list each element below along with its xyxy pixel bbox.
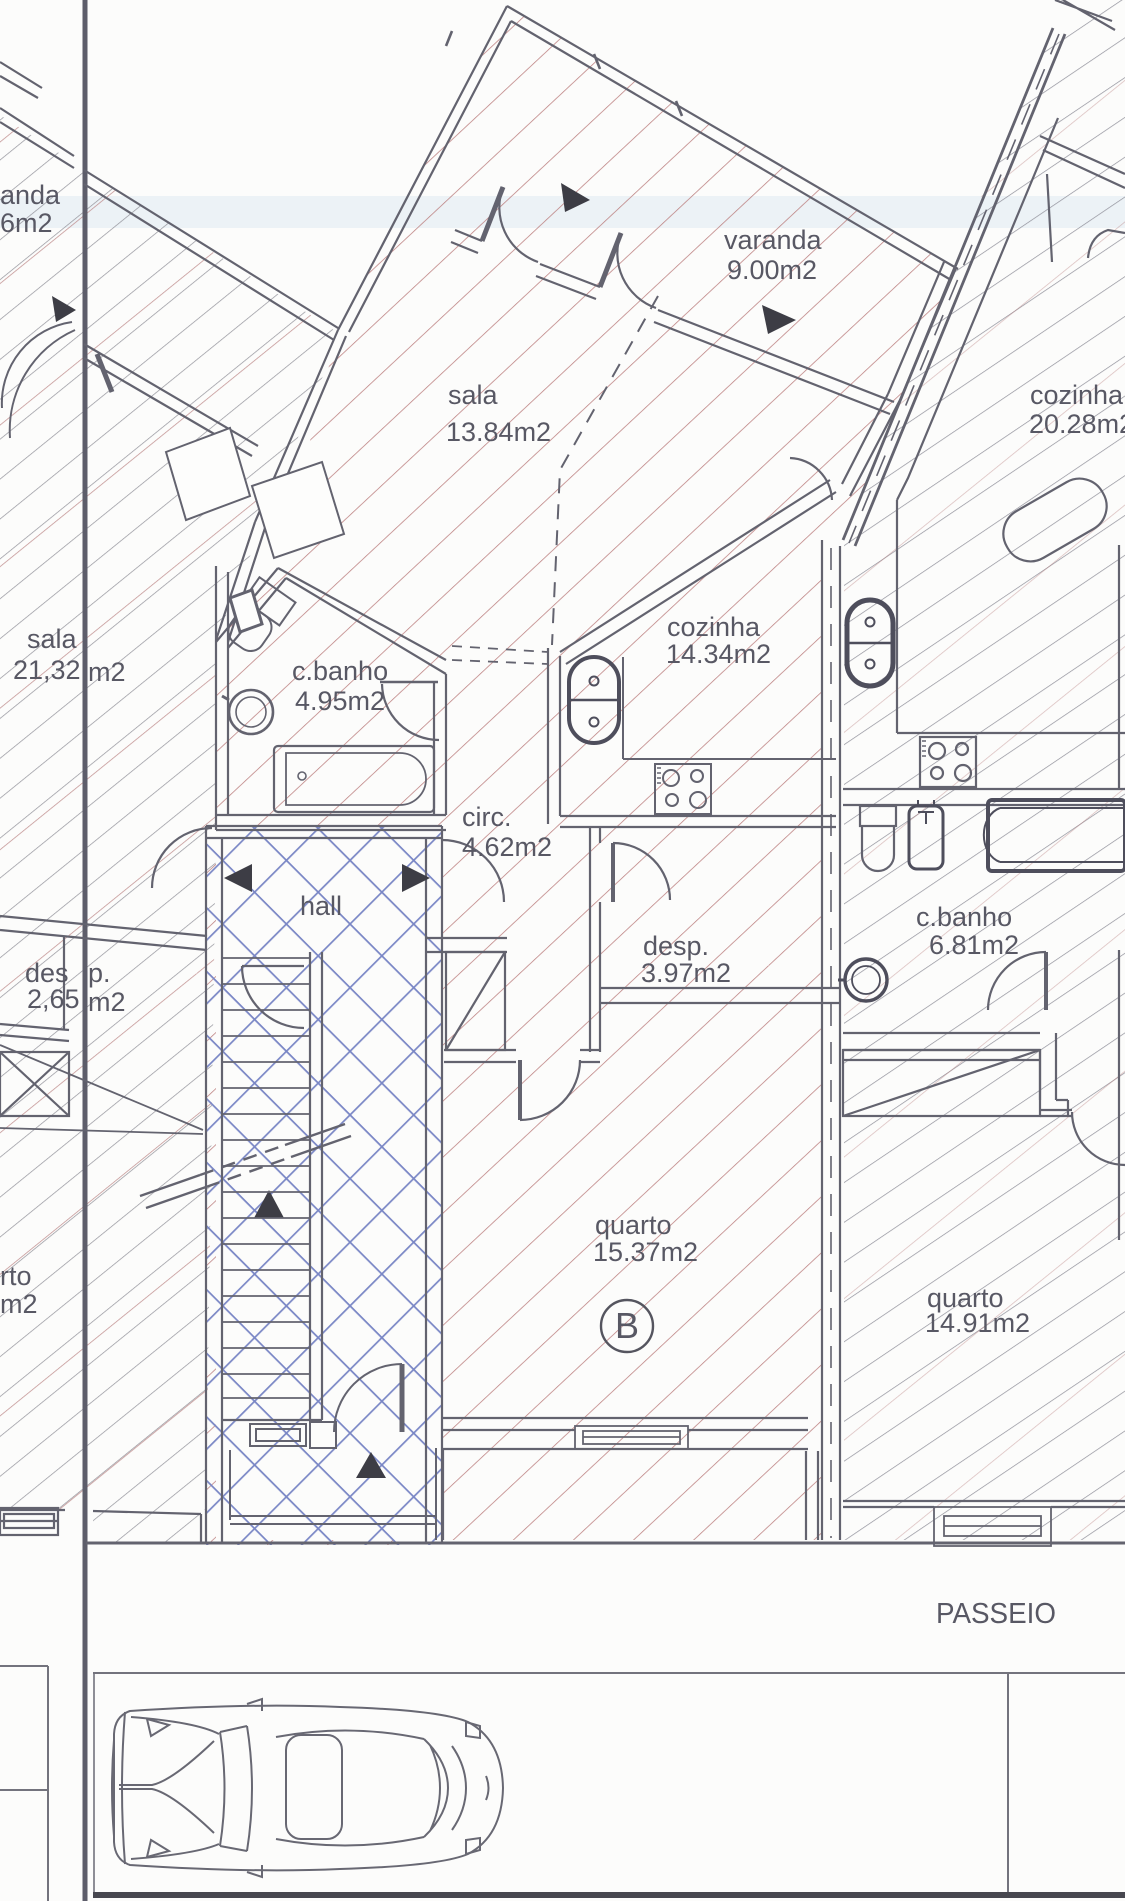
svg-text:m2: m2 [88,657,126,687]
svg-text:6m2: 6m2 [0,208,53,238]
svg-text:c.banho: c.banho [916,902,1012,932]
svg-text:4.95m2: 4.95m2 [295,686,385,716]
svg-text:p.: p. [88,958,111,988]
svg-text:6.81m2: 6.81m2 [929,930,1019,960]
svg-text:m2: m2 [0,1289,38,1319]
svg-text:PASSEIO: PASSEIO [936,1598,1056,1630]
svg-text:20.28m2: 20.28m2 [1029,409,1125,439]
svg-text:m2: m2 [88,987,126,1017]
svg-text:3.97m2: 3.97m2 [641,958,731,988]
svg-text:sala: sala [27,624,78,654]
svg-text:rto: rto [0,1261,32,1291]
svg-text:4.62m2: 4.62m2 [462,832,552,862]
svg-text:desp.: desp. [643,931,709,961]
svg-text:anda: anda [0,180,61,210]
svg-text:cozinha: cozinha [667,612,761,642]
svg-text:cozinha: cozinha [1030,380,1124,410]
svg-text:15.37m2: 15.37m2 [593,1237,698,1267]
svg-text:13.84m2: 13.84m2 [446,417,551,447]
svg-text:circ.: circ. [462,802,512,832]
svg-text:quarto: quarto [595,1210,672,1240]
svg-text:14.91m2: 14.91m2 [925,1308,1030,1338]
svg-text:2,65: 2,65 [27,984,80,1014]
svg-text:varanda: varanda [724,225,823,255]
svg-text:9.00m2: 9.00m2 [727,255,817,285]
svg-text:sala: sala [448,380,499,410]
svg-text:hall: hall [300,891,342,921]
svg-text:B: B [615,1305,639,1346]
svg-text:c.banho: c.banho [292,656,388,686]
svg-text:21,32: 21,32 [13,655,81,685]
svg-text:14.34m2: 14.34m2 [666,639,771,669]
